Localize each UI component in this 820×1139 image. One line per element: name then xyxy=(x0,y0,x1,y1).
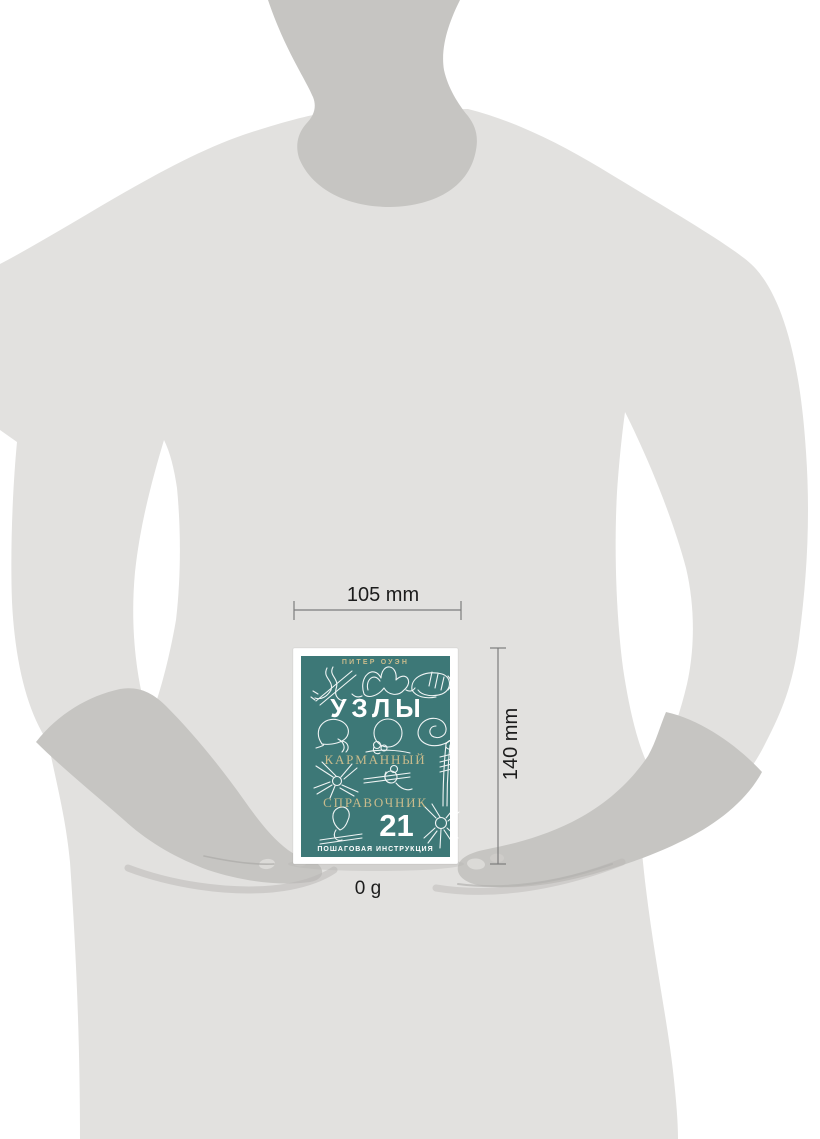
book-tagline: ПОШАГОВАЯ ИНСТРУКЦИЯ xyxy=(301,846,450,853)
book-subtitle-top: КАРМАННЫЙ xyxy=(301,753,450,766)
weight-label: 0 g xyxy=(338,879,398,898)
product-size-visualization: 105 mm 140 mm 0 g ПИТЕР ОУЭН УЗЛЫ КАРМАН… xyxy=(0,0,820,1139)
book-author: ПИТЕР ОУЭН xyxy=(301,659,450,666)
book-title: УЗЛЫ xyxy=(301,695,450,721)
height-dimension-label: 140 mm xyxy=(501,708,521,780)
width-dimension-label: 105 mm xyxy=(303,585,463,605)
book-knot-count: 21 xyxy=(322,810,471,841)
silhouette-and-book-graphic xyxy=(0,0,820,1139)
book-subtitle-bottom: СПРАВОЧНИК xyxy=(301,796,450,809)
